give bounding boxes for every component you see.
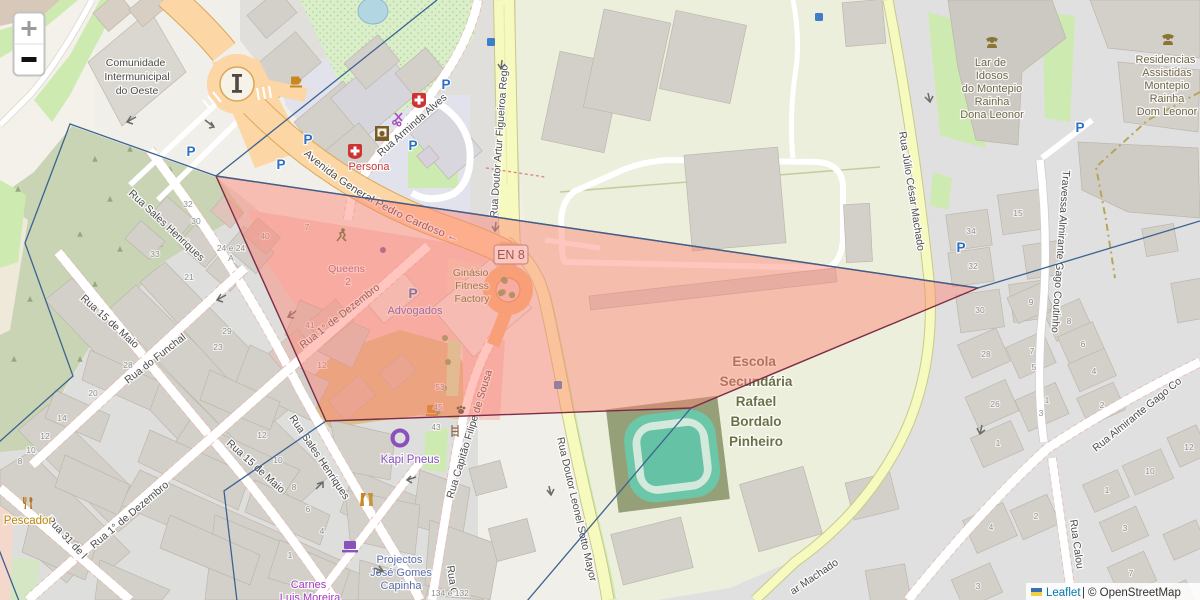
svg-text:12: 12 bbox=[40, 431, 50, 441]
svg-text:4: 4 bbox=[320, 526, 325, 536]
svg-text:8: 8 bbox=[1067, 316, 1072, 326]
svg-text:7: 7 bbox=[1129, 568, 1134, 578]
svg-text:14: 14 bbox=[57, 413, 67, 423]
svg-text:9: 9 bbox=[1029, 297, 1034, 307]
svg-text:8: 8 bbox=[18, 456, 23, 466]
svg-text:5: 5 bbox=[1032, 362, 1037, 372]
svg-text:6: 6 bbox=[1081, 339, 1086, 349]
svg-text:34: 34 bbox=[966, 226, 976, 236]
svg-text:Leaflet: Leaflet bbox=[1046, 587, 1081, 599]
svg-text:1: 1 bbox=[996, 438, 1001, 448]
svg-text:A: A bbox=[228, 253, 234, 263]
svg-text:6: 6 bbox=[306, 504, 311, 514]
svg-text:21: 21 bbox=[184, 272, 194, 282]
svg-text:4: 4 bbox=[1092, 366, 1097, 376]
svg-text:2: 2 bbox=[1100, 400, 1105, 410]
svg-text:4: 4 bbox=[989, 522, 994, 532]
svg-text:1: 1 bbox=[1045, 395, 1050, 405]
svg-text:3: 3 bbox=[1123, 523, 1128, 533]
svg-text:24 e 24: 24 e 24 bbox=[217, 243, 246, 253]
svg-text:8: 8 bbox=[292, 482, 297, 492]
svg-text:28: 28 bbox=[981, 349, 991, 359]
svg-text:32: 32 bbox=[183, 199, 193, 209]
svg-text:3: 3 bbox=[976, 581, 981, 591]
svg-text:2: 2 bbox=[1034, 511, 1039, 521]
svg-text:P: P bbox=[1075, 120, 1084, 135]
svg-text:12: 12 bbox=[1184, 442, 1194, 452]
svg-text:15: 15 bbox=[1013, 208, 1023, 218]
svg-text:© OpenStreetMap: © OpenStreetMap bbox=[1088, 587, 1181, 599]
svg-text:32: 32 bbox=[968, 261, 978, 271]
svg-text:23: 23 bbox=[213, 342, 223, 352]
svg-text:7: 7 bbox=[1030, 346, 1035, 356]
svg-text:1: 1 bbox=[288, 550, 293, 560]
svg-text:33: 33 bbox=[150, 249, 160, 259]
svg-text:P: P bbox=[276, 157, 285, 172]
svg-text:134 e 132: 134 e 132 bbox=[431, 588, 469, 598]
svg-text:10: 10 bbox=[26, 445, 36, 455]
svg-text:28: 28 bbox=[123, 360, 133, 370]
svg-text:12: 12 bbox=[257, 430, 267, 440]
svg-text:43: 43 bbox=[431, 422, 441, 432]
svg-text:|: | bbox=[1082, 587, 1085, 599]
svg-text:Persona: Persona bbox=[349, 161, 391, 173]
svg-text:P: P bbox=[303, 132, 312, 147]
svg-text:30: 30 bbox=[191, 216, 201, 226]
svg-text:30: 30 bbox=[975, 305, 985, 315]
svg-text:20: 20 bbox=[88, 388, 98, 398]
svg-text:Pescador: Pescador bbox=[4, 515, 53, 527]
svg-text:1: 1 bbox=[1105, 485, 1110, 495]
svg-text:Kapi Pneus: Kapi Pneus bbox=[381, 454, 440, 466]
svg-text:P: P bbox=[441, 77, 450, 92]
svg-text:P: P bbox=[186, 144, 195, 159]
svg-text:P: P bbox=[408, 138, 417, 153]
svg-text:Residencias AssistidasMontepio: Residencias AssistidasMontepioRainhaDom … bbox=[1136, 54, 1199, 118]
svg-text:26: 26 bbox=[990, 399, 1000, 409]
svg-text:10: 10 bbox=[1145, 466, 1155, 476]
svg-text:29: 29 bbox=[222, 326, 232, 336]
svg-text:3: 3 bbox=[1039, 408, 1044, 418]
svg-text:P: P bbox=[956, 240, 965, 255]
